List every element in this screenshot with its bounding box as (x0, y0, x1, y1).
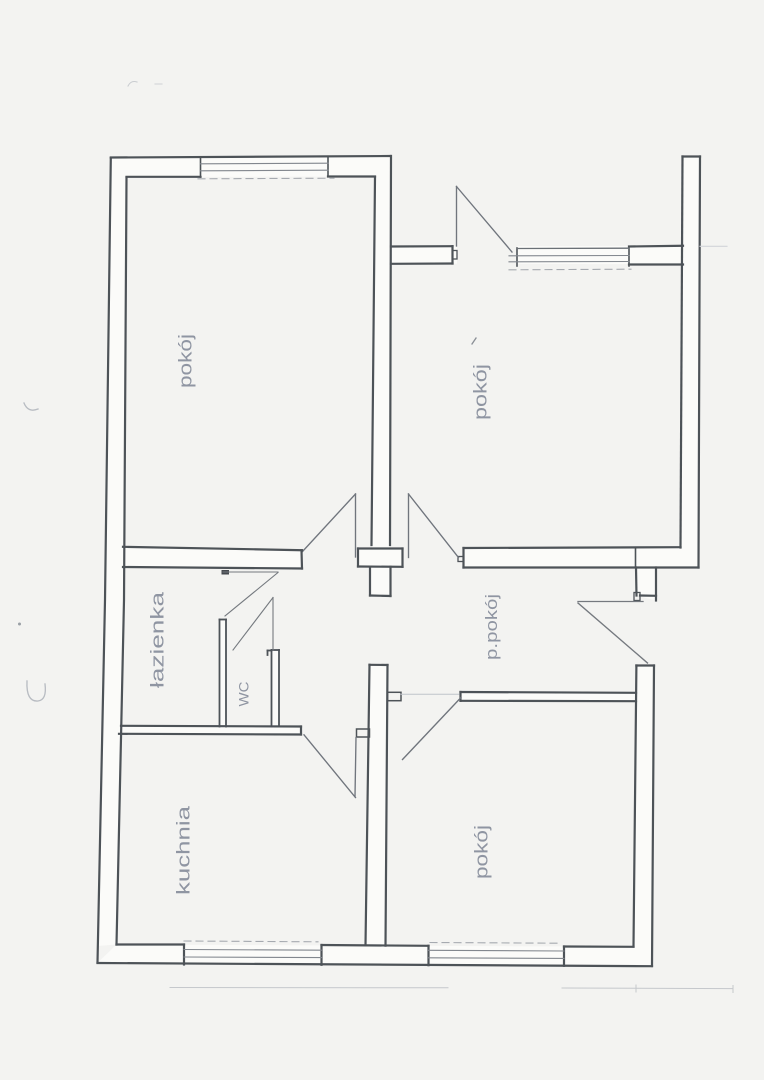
svg-text:kuchnia: kuchnia (174, 805, 194, 895)
svg-text:WC: WC (237, 681, 252, 706)
svg-text:p.pokój: p.pokój (482, 594, 501, 660)
svg-text:pokój: pokój (176, 334, 196, 388)
svg-text:łazienka: łazienka (148, 591, 168, 688)
svg-text:pokój: pokój (472, 825, 492, 879)
svg-text:pokój: pokój (471, 364, 491, 420)
